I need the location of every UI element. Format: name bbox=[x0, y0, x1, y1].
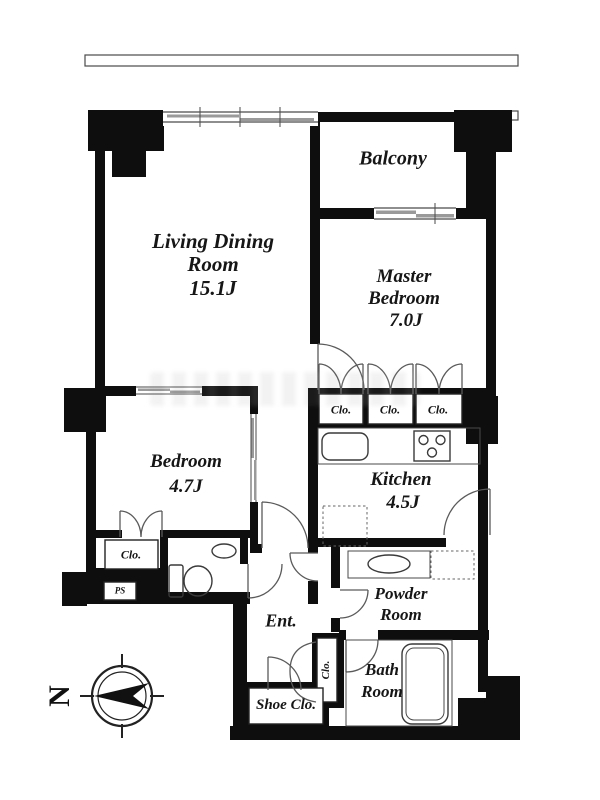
closet-boxes bbox=[104, 394, 462, 724]
kitchen-sink-icon bbox=[322, 433, 368, 460]
washbasin-icon bbox=[348, 551, 430, 578]
room-label-entrance: Ent. bbox=[265, 612, 297, 631]
room-label-powder-line2: Room bbox=[380, 606, 422, 624]
closet-label-3: Clo. bbox=[428, 404, 448, 417]
washing-machine-space bbox=[431, 551, 474, 579]
room-label-balcony: Balcony bbox=[359, 149, 427, 170]
room-label-living-line1: Living Dining bbox=[152, 230, 274, 252]
walls bbox=[62, 110, 520, 740]
room-label-bath-line1: Bath bbox=[365, 661, 399, 679]
room-label-kitchen: Kitchen bbox=[370, 470, 431, 490]
window-balcony-master bbox=[374, 203, 456, 224]
room-label-living-line2: Room bbox=[187, 253, 238, 275]
pipe-space-label: PS bbox=[115, 586, 126, 595]
room-label-bath-line2: Room bbox=[361, 683, 403, 701]
compass-icon: N bbox=[43, 654, 164, 738]
closet-label-shoe: Shoe Clo. bbox=[256, 698, 316, 714]
room-label-master-size: 7.0J bbox=[389, 311, 422, 331]
sliding-door-bedroom-hall bbox=[250, 414, 258, 502]
north-label: N bbox=[43, 685, 76, 707]
bathtub-icon bbox=[402, 644, 448, 724]
north-arrow-icon bbox=[94, 683, 149, 709]
toilet-icon bbox=[169, 544, 236, 597]
room-label-bedroom: Bedroom bbox=[150, 452, 222, 472]
floor-plan-canvas: N Balcony Living Dining Room 15.1J Maste… bbox=[0, 0, 600, 800]
window-living-top bbox=[163, 107, 318, 127]
watermark bbox=[150, 372, 420, 406]
room-label-powder-line1: Powder bbox=[375, 585, 428, 603]
stove-icon bbox=[414, 431, 450, 461]
room-label-bedroom-size: 4.7J bbox=[169, 477, 202, 497]
room-label-kitchen-size: 4.5J bbox=[386, 493, 419, 513]
room-label-living-size: 15.1J bbox=[189, 277, 236, 299]
room-label-master-line1: Master bbox=[377, 267, 432, 287]
room-label-master-line2: Bedroom bbox=[368, 289, 440, 309]
closet-label-hall: Clo. bbox=[321, 661, 333, 680]
closet-label-2: Clo. bbox=[380, 404, 400, 417]
closet-label-bedroom: Clo. bbox=[121, 549, 141, 562]
closet-label-1: Clo. bbox=[331, 404, 351, 417]
